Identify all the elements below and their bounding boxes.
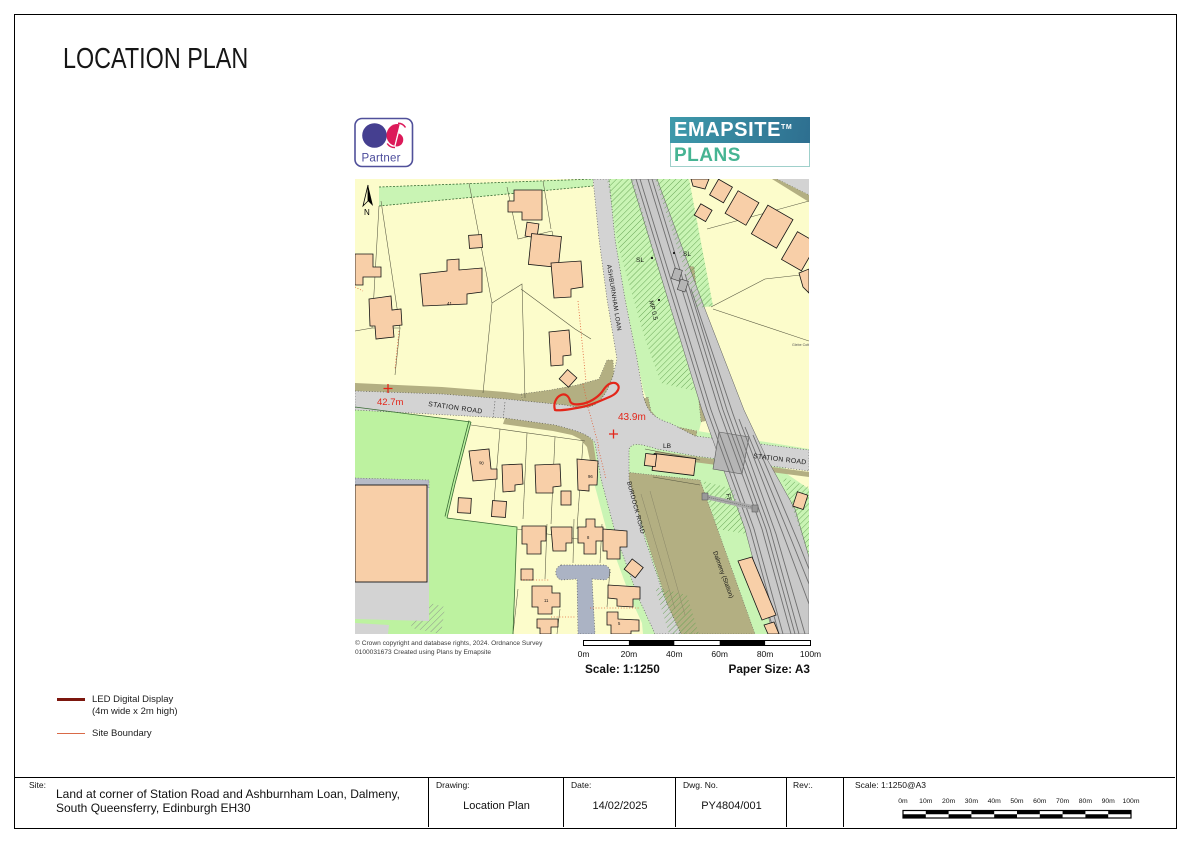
svg-text:LB: LB (663, 443, 672, 450)
svg-text:Partner: Partner (362, 153, 401, 165)
svg-text:40m: 40m (988, 798, 1002, 805)
svg-text:80m: 80m (757, 649, 774, 659)
svg-text:80m: 80m (1079, 798, 1093, 805)
svg-text:20m: 20m (942, 798, 956, 805)
svg-text:60m: 60m (711, 649, 728, 659)
svg-text:N: N (364, 208, 370, 217)
svg-text:11: 11 (544, 598, 549, 603)
svg-text:SL: SL (683, 251, 691, 258)
svg-text:43.9m: 43.9m (618, 412, 646, 423)
svg-text:100m: 100m (1122, 798, 1139, 805)
svg-text:SL: SL (636, 257, 644, 264)
svg-text:60m: 60m (1033, 798, 1047, 805)
svg-text:0m: 0m (578, 649, 590, 659)
svg-text:70m: 70m (1056, 798, 1070, 805)
svg-text:50m: 50m (1010, 798, 1024, 805)
svg-text:41: 41 (447, 301, 453, 306)
svg-text:42.7m: 42.7m (377, 397, 403, 408)
svg-text:40m: 40m (666, 649, 683, 659)
svg-text:20m: 20m (621, 649, 638, 659)
svg-text:0m: 0m (898, 798, 908, 805)
svg-text:100m: 100m (800, 649, 821, 659)
svg-text:Glebe Cott: Glebe Cott (792, 343, 809, 347)
svg-text:10m: 10m (919, 798, 933, 805)
svg-text:30m: 30m (965, 798, 979, 805)
svg-text:96: 96 (588, 474, 593, 479)
svg-text:90m: 90m (1102, 798, 1116, 805)
